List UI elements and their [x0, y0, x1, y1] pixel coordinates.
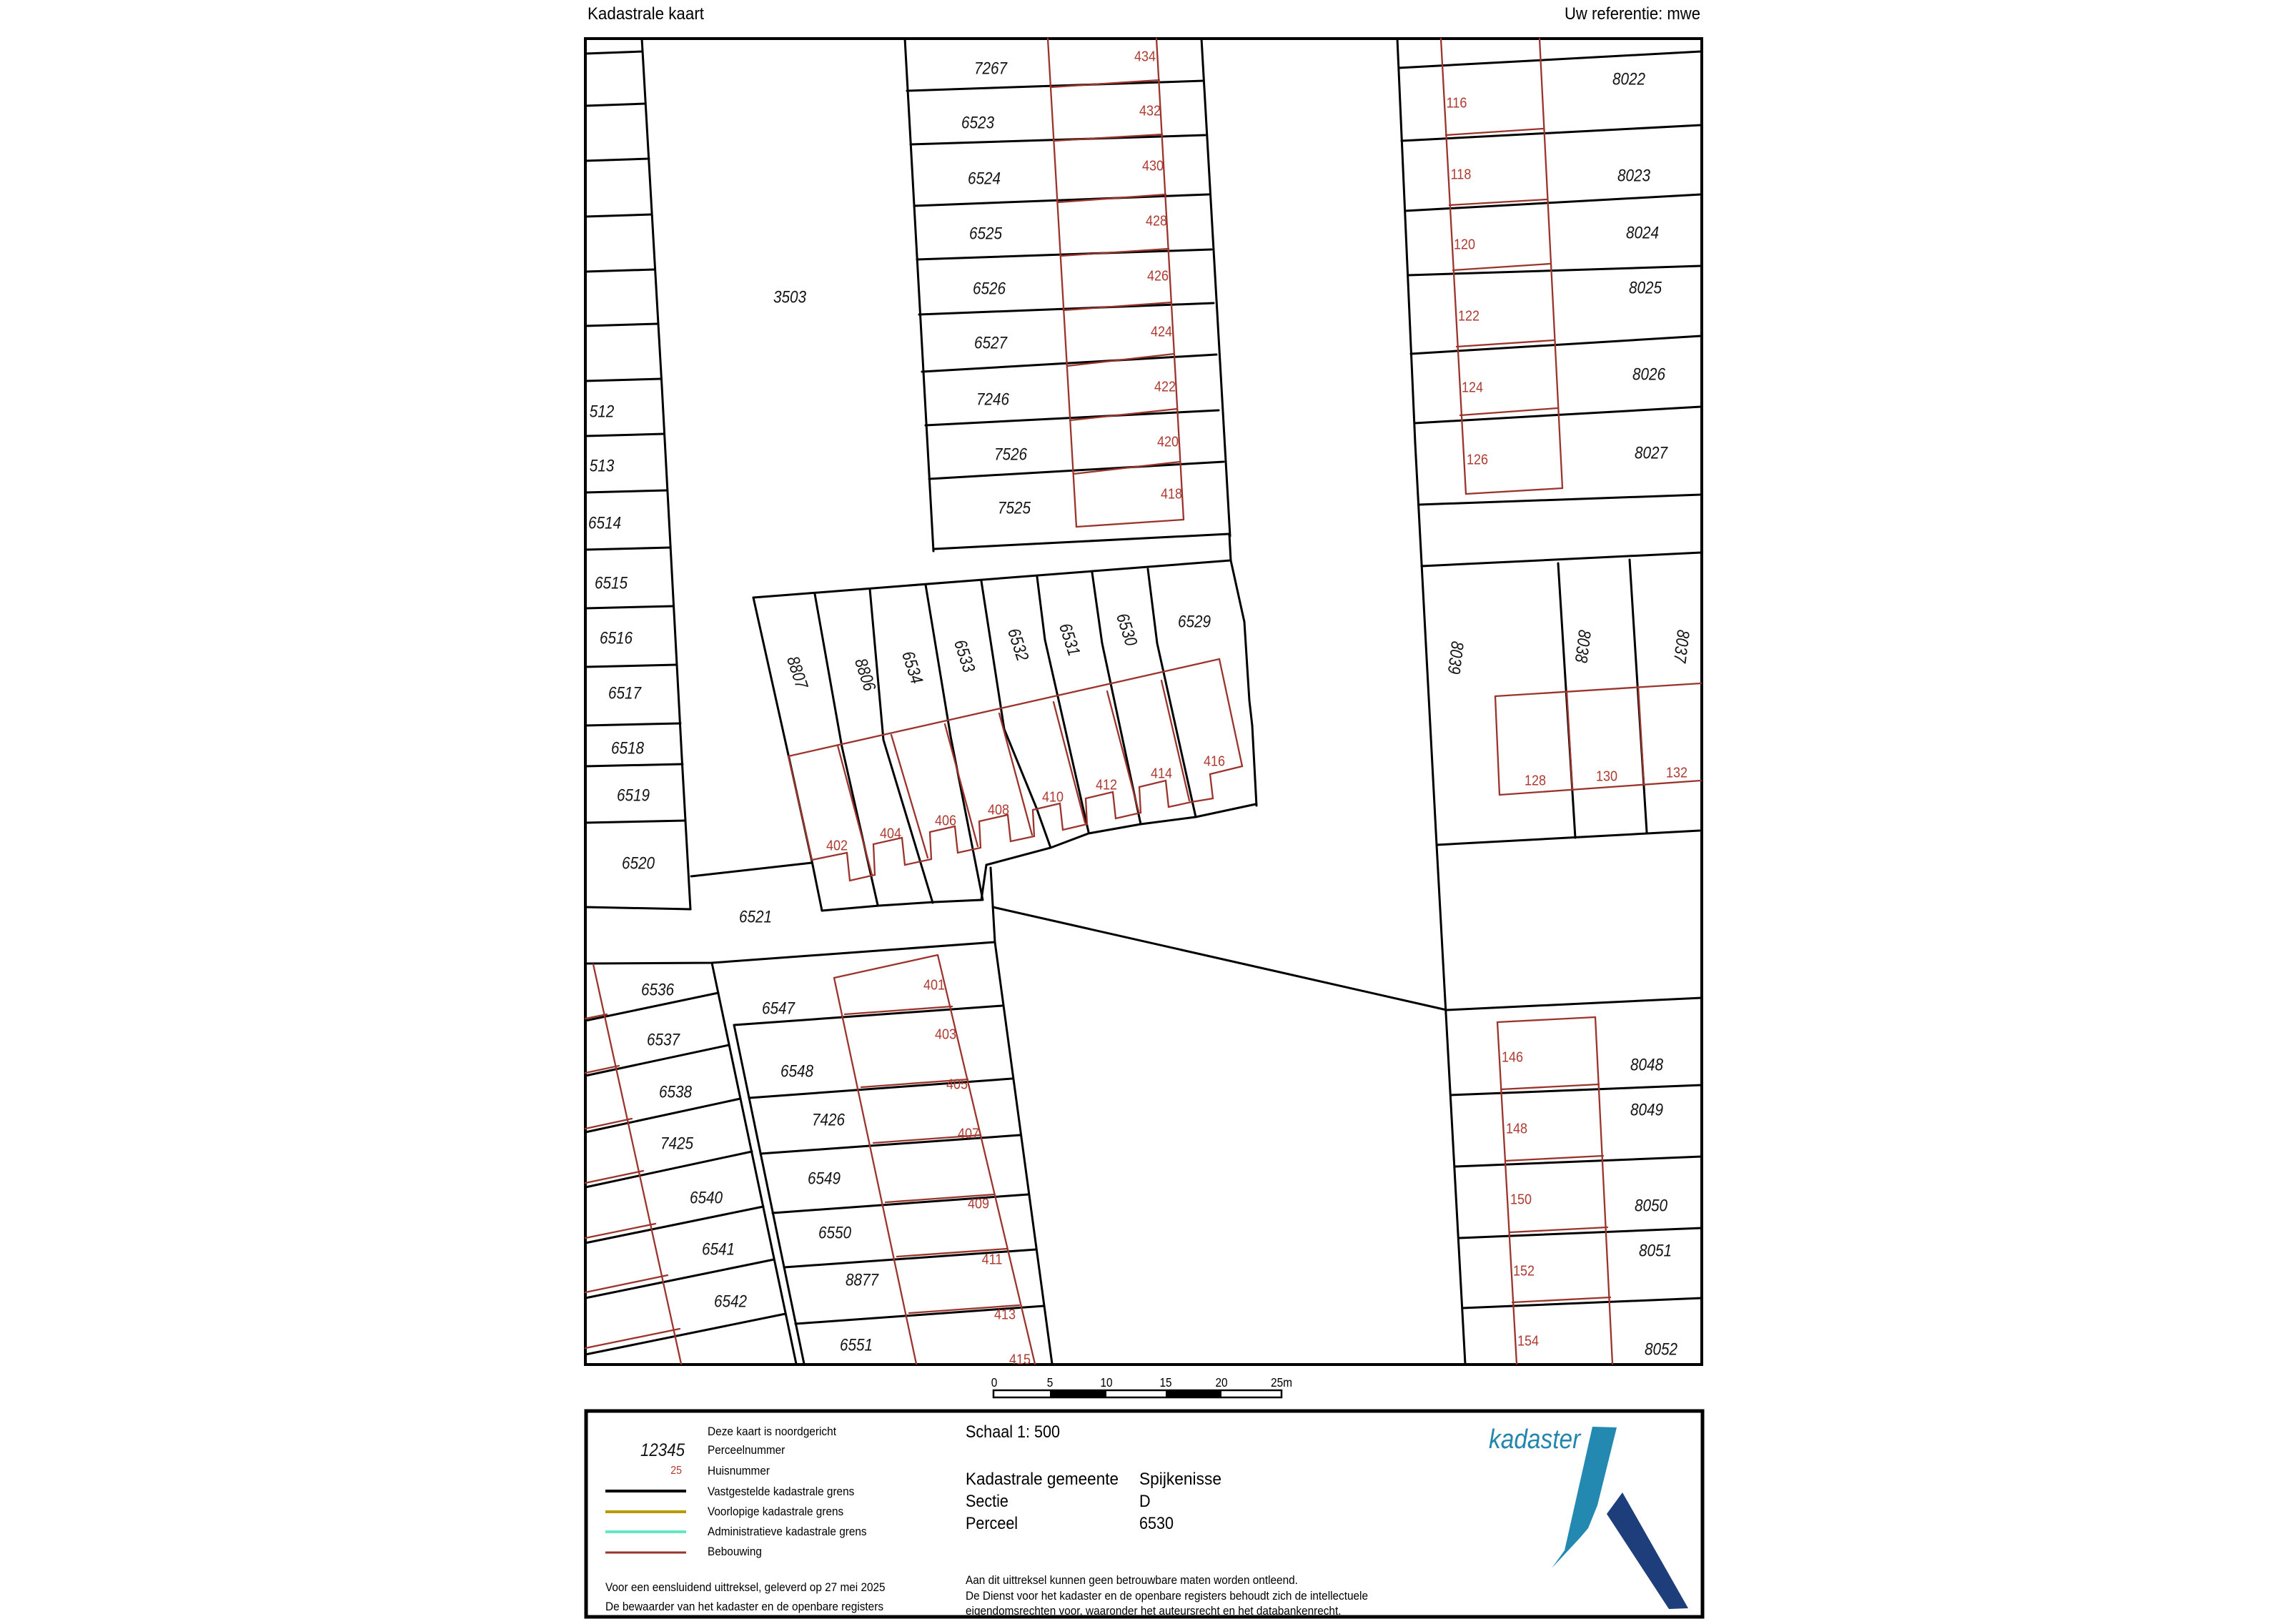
- svg-text:6527: 6527: [974, 334, 1008, 353]
- svg-text:5: 5: [1047, 1375, 1054, 1390]
- svg-text:0: 0: [991, 1375, 998, 1390]
- svg-text:Administratieve kadastrale gre: Administratieve kadastrale grens: [708, 1525, 867, 1538]
- svg-text:146: 146: [1502, 1049, 1523, 1066]
- svg-text:130: 130: [1596, 768, 1617, 785]
- svg-text:8052: 8052: [1645, 1340, 1677, 1360]
- svg-text:7246: 7246: [976, 390, 1009, 410]
- svg-text:6542: 6542: [714, 1292, 747, 1312]
- svg-text:8023: 8023: [1617, 167, 1650, 186]
- svg-text:8050: 8050: [1635, 1197, 1667, 1216]
- svg-text:420: 420: [1157, 434, 1179, 450]
- svg-text:428: 428: [1146, 213, 1167, 229]
- svg-text:6551: 6551: [840, 1336, 873, 1355]
- svg-text:513: 513: [590, 457, 615, 476]
- svg-text:6549: 6549: [808, 1169, 841, 1189]
- svg-text:6518: 6518: [611, 739, 644, 758]
- svg-text:424: 424: [1151, 324, 1172, 340]
- svg-text:422: 422: [1154, 379, 1176, 395]
- svg-text:8027: 8027: [1635, 444, 1668, 463]
- svg-text:118: 118: [1451, 167, 1472, 183]
- svg-text:7267: 7267: [974, 59, 1008, 79]
- svg-text:404: 404: [880, 826, 901, 842]
- svg-text:6521: 6521: [739, 908, 772, 927]
- svg-text:8877: 8877: [846, 1271, 879, 1290]
- svg-text:Perceelnummer: Perceelnummer: [708, 1444, 785, 1457]
- svg-text:eigendomsrechten voor, waarond: eigendomsrechten voor, waaronder het aut…: [966, 1605, 1342, 1618]
- svg-text:6515: 6515: [595, 574, 628, 593]
- svg-text:415: 415: [1009, 1352, 1031, 1368]
- svg-text:6516: 6516: [600, 629, 633, 648]
- svg-text:Perceel: Perceel: [966, 1514, 1018, 1533]
- svg-text:6520: 6520: [622, 854, 655, 873]
- svg-text:512: 512: [590, 402, 615, 422]
- svg-text:Voor een eensluidend uittrekse: Voor een eensluidend uittreksel, gelever…: [605, 1581, 886, 1594]
- svg-text:Kadastrale kaart: Kadastrale kaart: [588, 4, 704, 24]
- svg-text:8024: 8024: [1626, 224, 1659, 243]
- svg-text:6537: 6537: [647, 1031, 680, 1050]
- svg-text:Uw referentie: mwe: Uw referentie: mwe: [1565, 4, 1700, 24]
- svg-text:416: 416: [1204, 753, 1225, 770]
- svg-text:6524: 6524: [968, 169, 1001, 189]
- svg-text:412: 412: [1096, 777, 1117, 793]
- svg-text:8048: 8048: [1630, 1056, 1663, 1075]
- svg-text:kadaster: kadaster: [1489, 1425, 1581, 1455]
- svg-text:Voorlopige kadastrale grens: Voorlopige kadastrale grens: [708, 1505, 843, 1518]
- svg-text:6517: 6517: [608, 684, 642, 703]
- svg-text:Deze kaart is noordgericht: Deze kaart is noordgericht: [708, 1425, 836, 1438]
- svg-text:Sectie: Sectie: [966, 1492, 1008, 1511]
- svg-text:430: 430: [1142, 158, 1164, 174]
- svg-text:De Dienst voor het kadaster en: De Dienst voor het kadaster en de openba…: [966, 1590, 1368, 1603]
- svg-text:6519: 6519: [617, 786, 650, 806]
- svg-text:Huisnummer: Huisnummer: [708, 1465, 770, 1477]
- svg-text:402: 402: [826, 838, 848, 854]
- svg-text:411: 411: [982, 1252, 1003, 1268]
- svg-text:405: 405: [946, 1076, 968, 1093]
- svg-text:Kadastrale gemeente: Kadastrale gemeente: [966, 1470, 1119, 1489]
- svg-text:413: 413: [994, 1307, 1016, 1323]
- svg-text:132: 132: [1666, 765, 1687, 781]
- svg-text:406: 406: [935, 813, 956, 829]
- svg-text:6550: 6550: [818, 1224, 851, 1243]
- svg-text:8026: 8026: [1632, 365, 1665, 385]
- svg-text:6541: 6541: [702, 1240, 735, 1259]
- svg-text:409: 409: [968, 1196, 989, 1212]
- svg-text:6525: 6525: [969, 224, 1002, 244]
- svg-text:6548: 6548: [780, 1062, 813, 1081]
- svg-text:124: 124: [1462, 380, 1483, 396]
- svg-text:6536: 6536: [641, 981, 674, 1000]
- svg-text:408: 408: [988, 802, 1009, 818]
- svg-text:432: 432: [1139, 103, 1161, 119]
- svg-text:120: 120: [1454, 237, 1475, 253]
- svg-text:426: 426: [1147, 268, 1169, 284]
- svg-text:25: 25: [670, 1465, 682, 1477]
- svg-text:8022: 8022: [1612, 70, 1645, 89]
- svg-text:6530: 6530: [1139, 1514, 1174, 1533]
- svg-text:418: 418: [1161, 486, 1182, 502]
- svg-text:8049: 8049: [1630, 1101, 1663, 1120]
- svg-text:148: 148: [1506, 1121, 1527, 1137]
- svg-text:6529: 6529: [1178, 613, 1211, 632]
- svg-text:Bebouwing: Bebouwing: [708, 1545, 762, 1558]
- svg-text:6514: 6514: [588, 514, 621, 533]
- svg-text:8051: 8051: [1639, 1242, 1672, 1261]
- svg-text:Schaal 1: 500: Schaal 1: 500: [966, 1422, 1060, 1442]
- svg-text:6523: 6523: [961, 114, 994, 133]
- svg-text:10: 10: [1100, 1375, 1112, 1390]
- svg-text:434: 434: [1134, 49, 1156, 65]
- svg-text:20: 20: [1215, 1375, 1227, 1390]
- svg-text:407: 407: [958, 1126, 979, 1142]
- svg-text:6538: 6538: [659, 1083, 692, 1102]
- svg-text:122: 122: [1458, 308, 1479, 325]
- svg-text:8038: 8038: [1571, 628, 1594, 663]
- svg-text:410: 410: [1042, 789, 1064, 806]
- svg-text:6547: 6547: [762, 999, 795, 1019]
- svg-text:D: D: [1139, 1492, 1151, 1511]
- svg-text:12345: 12345: [640, 1440, 685, 1460]
- svg-text:128: 128: [1525, 773, 1546, 789]
- svg-text:Spijkenisse: Spijkenisse: [1139, 1470, 1221, 1489]
- svg-text:154: 154: [1517, 1333, 1539, 1350]
- svg-text:403: 403: [935, 1026, 956, 1043]
- svg-text:8037: 8037: [1670, 628, 1693, 664]
- svg-text:150: 150: [1510, 1192, 1532, 1208]
- svg-text:7526: 7526: [994, 445, 1027, 465]
- svg-text:401: 401: [923, 977, 945, 994]
- svg-text:Vastgestelde kadastrale grens: Vastgestelde kadastrale grens: [708, 1485, 854, 1498]
- svg-text:15: 15: [1159, 1375, 1171, 1390]
- svg-text:3503: 3503: [773, 288, 806, 307]
- svg-text:8025: 8025: [1629, 279, 1662, 298]
- svg-text:7425: 7425: [660, 1134, 693, 1154]
- svg-text:6540: 6540: [690, 1189, 723, 1208]
- svg-text:126: 126: [1467, 452, 1488, 468]
- svg-text:6526: 6526: [973, 279, 1006, 299]
- svg-text:116: 116: [1447, 95, 1467, 112]
- svg-text:414: 414: [1151, 766, 1172, 782]
- svg-text:De bewaarder van het kadaster: De bewaarder van het kadaster en de open…: [605, 1600, 883, 1613]
- svg-text:152: 152: [1513, 1263, 1535, 1279]
- svg-text:7426: 7426: [812, 1111, 845, 1130]
- svg-text:25m: 25m: [1271, 1375, 1292, 1390]
- svg-text:8039: 8039: [1444, 640, 1467, 675]
- svg-text:7525: 7525: [998, 499, 1031, 518]
- svg-text:Aan dit uittreksel kunnen geen: Aan dit uittreksel kunnen geen betrouwba…: [966, 1574, 1298, 1587]
